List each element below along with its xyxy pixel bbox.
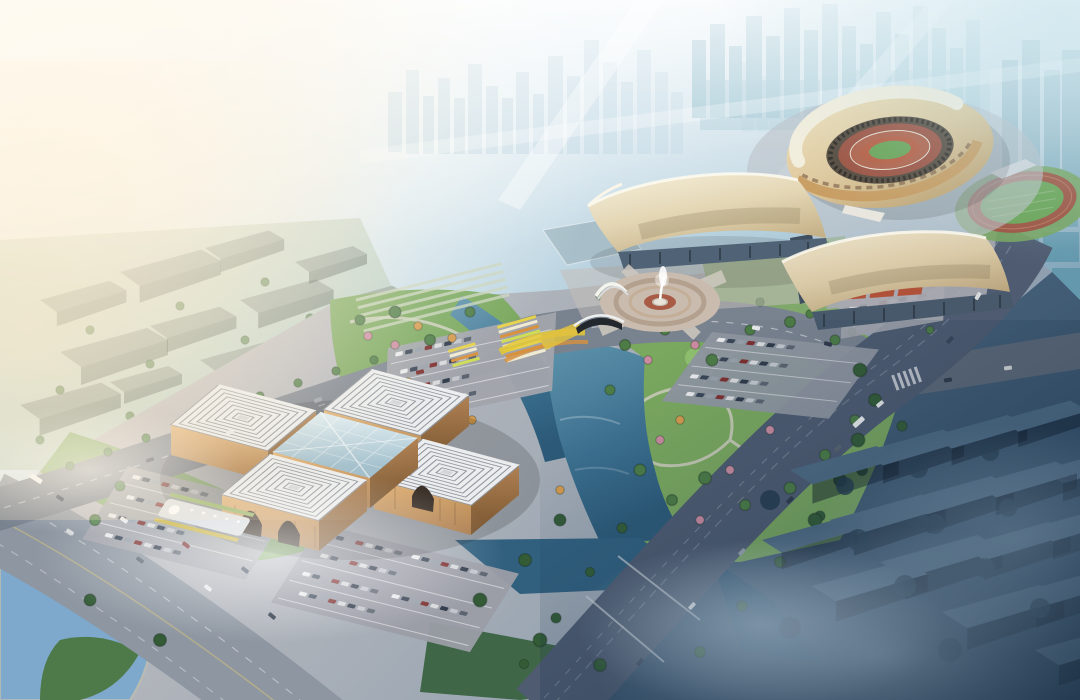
rendering-canvas: [0, 0, 1080, 700]
teal-haze: [700, 0, 1080, 280]
atmosphere-overlays: [0, 0, 1080, 700]
warm-light: [0, 60, 520, 520]
aerial-rendering: [0, 0, 1080, 700]
